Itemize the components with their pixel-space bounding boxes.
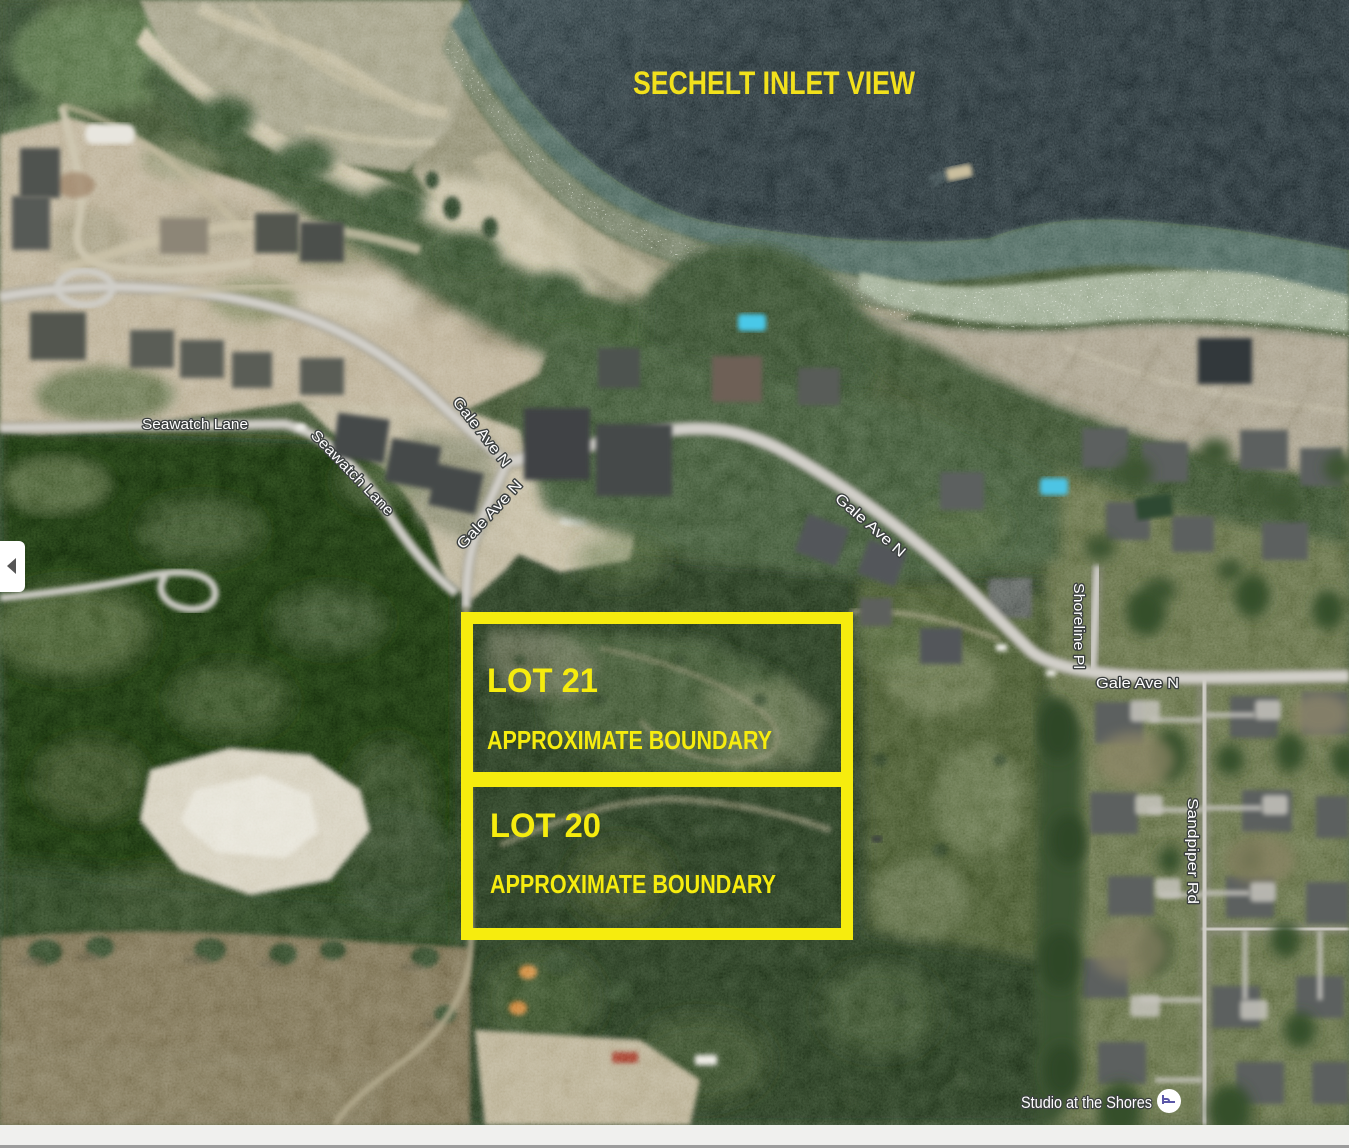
svg-text:Studio at the Shores: Studio at the Shores — [1021, 1093, 1152, 1112]
svg-text:Shoreline Pl: Shoreline Pl — [1070, 583, 1087, 669]
svg-text:Sandpiper Rd: Sandpiper Rd — [1184, 798, 1201, 904]
svg-text:SECHELT INLET VIEW: SECHELT INLET VIEW — [633, 65, 916, 101]
svg-text:APPROXIMATE BOUNDARY: APPROXIMATE BOUNDARY — [487, 725, 772, 755]
svg-text:Seawatch Lane: Seawatch Lane — [142, 416, 248, 433]
svg-text:LOT 21: LOT 21 — [487, 662, 598, 700]
svg-text:LOT 20: LOT 20 — [490, 807, 601, 845]
svg-text:APPROXIMATE BOUNDARY: APPROXIMATE BOUNDARY — [490, 869, 776, 899]
svg-text:Gale Ave N: Gale Ave N — [1096, 675, 1179, 692]
